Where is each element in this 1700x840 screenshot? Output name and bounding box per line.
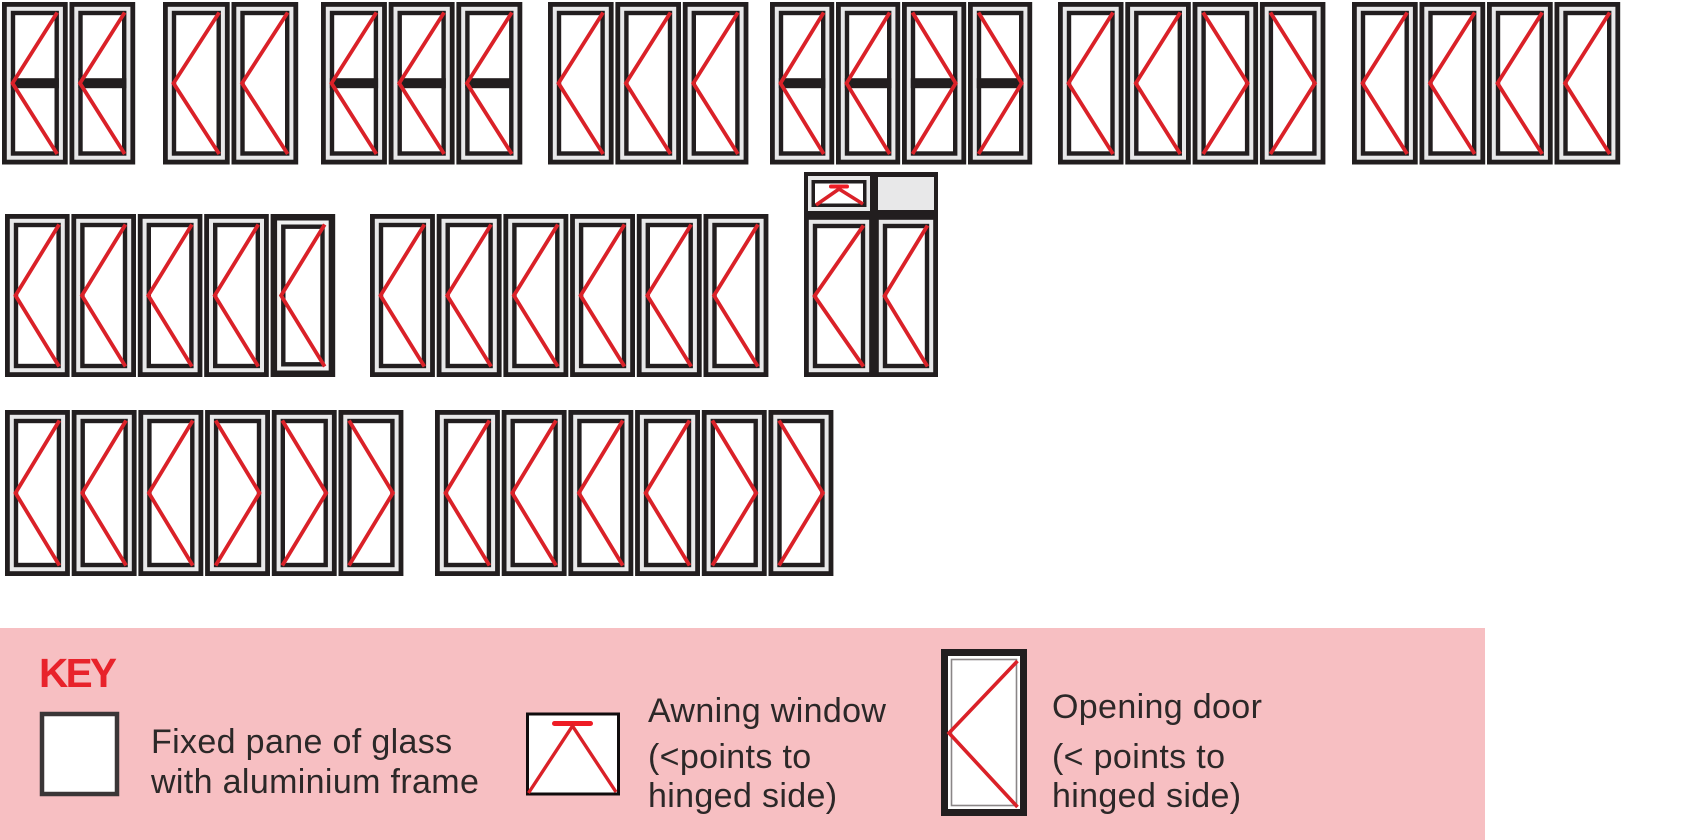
svg-text:with aluminium frame: with aluminium frame	[150, 763, 479, 801]
svg-text:KEY: KEY	[39, 650, 117, 696]
svg-text:hinged side): hinged side)	[648, 777, 837, 815]
svg-text:Awning window: Awning window	[648, 692, 886, 730]
svg-text:Opening door: Opening door	[1052, 688, 1262, 726]
svg-text:(< points to: (< points to	[1052, 738, 1225, 776]
svg-text:(<points to: (<points to	[648, 738, 812, 776]
svg-text:hinged side): hinged side)	[1052, 777, 1241, 815]
svg-text:Fixed pane of glass: Fixed pane of glass	[151, 723, 453, 761]
